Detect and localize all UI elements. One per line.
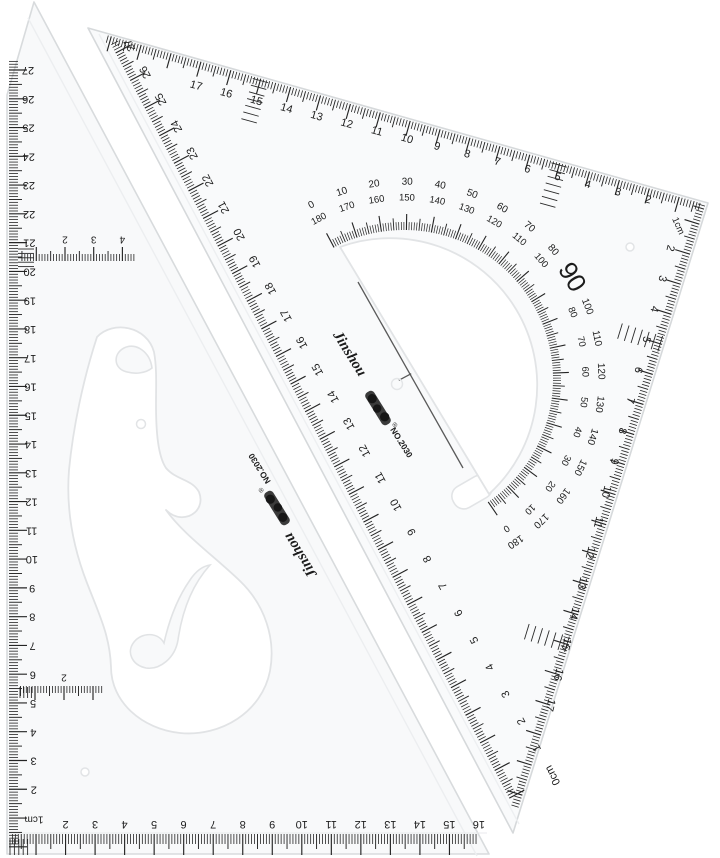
scale-number: 6 bbox=[181, 818, 187, 830]
scale-number: 12 bbox=[25, 496, 37, 508]
scale-number: 7 bbox=[30, 639, 36, 651]
scale-number: 2 bbox=[62, 233, 68, 244]
scale-number: 3 bbox=[90, 233, 96, 244]
scale-unit-label: 1cm bbox=[25, 813, 44, 824]
product-photo: 2726252423222120191817161514131211109876… bbox=[0, 0, 720, 858]
scale-number: 2 bbox=[31, 783, 37, 795]
scale-number: 10 bbox=[296, 818, 308, 830]
scale-number: 14 bbox=[25, 438, 37, 450]
scale-number: 10 bbox=[26, 553, 38, 565]
scale-number: 21 bbox=[23, 237, 35, 249]
protractor-degree-outer: 130 bbox=[593, 395, 606, 413]
curve-triangle-hole bbox=[137, 420, 146, 429]
scale-number: 26 bbox=[22, 93, 34, 105]
scale-number: 8 bbox=[240, 818, 246, 830]
protractor-degree-inner: 50 bbox=[577, 396, 589, 408]
protractor-degree-outer: 120 bbox=[595, 363, 607, 381]
scale-number: 8 bbox=[29, 611, 35, 623]
protractor-degree-inner: 70 bbox=[575, 335, 588, 348]
protractor-degree-outer: 20 bbox=[368, 178, 381, 191]
scale-number: 2 bbox=[62, 818, 68, 830]
scale-number: 9 bbox=[269, 818, 275, 830]
scale-number: 4 bbox=[30, 726, 36, 738]
scale-number: 5 bbox=[151, 818, 157, 830]
scale-number: 3 bbox=[30, 755, 36, 767]
scale-number: 18 bbox=[24, 323, 36, 335]
scale-number: 0cm bbox=[543, 763, 563, 787]
scale-number: 27 bbox=[22, 64, 34, 76]
scale-number: 25 bbox=[22, 122, 34, 134]
scale-number: 11 bbox=[326, 818, 337, 830]
protractor-triangle-hole bbox=[626, 243, 634, 251]
scale-number: 22 bbox=[23, 208, 35, 220]
scale-number: 16 bbox=[473, 818, 485, 830]
protractor-degree-outer: 30 bbox=[402, 177, 414, 188]
scale-number: 16 bbox=[24, 381, 36, 393]
scale-number: 7 bbox=[210, 818, 216, 830]
scale-number: 24 bbox=[23, 150, 35, 162]
scale-number: 11 bbox=[26, 524, 37, 536]
scale-number: 4 bbox=[121, 818, 127, 830]
scale-number: 9 bbox=[29, 582, 35, 594]
protractor-degree-inner: 150 bbox=[399, 192, 415, 203]
scale-number: 14 bbox=[414, 818, 426, 830]
scale-number: 15 bbox=[443, 818, 455, 830]
scale-number: 13 bbox=[25, 467, 37, 479]
curve-triangle-hang-hole bbox=[81, 768, 89, 776]
scale-number: 15 bbox=[25, 409, 37, 421]
scale-number: 19 bbox=[24, 294, 36, 306]
scale-number: 20 bbox=[23, 265, 35, 277]
protractor-degree-inner: 60 bbox=[579, 366, 590, 377]
scale-number: 2 bbox=[61, 671, 67, 682]
scale-number: 4 bbox=[119, 233, 125, 244]
scale-number: 12 bbox=[355, 818, 367, 830]
scale-number: 13 bbox=[384, 818, 396, 830]
scale-number: 17 bbox=[24, 352, 36, 364]
scale-number: 23 bbox=[23, 179, 35, 191]
scale-number: 6 bbox=[30, 668, 36, 680]
rulers-scene: 2726252423222120191817161514131211109876… bbox=[0, 0, 720, 858]
scale-number: 3 bbox=[92, 818, 98, 830]
